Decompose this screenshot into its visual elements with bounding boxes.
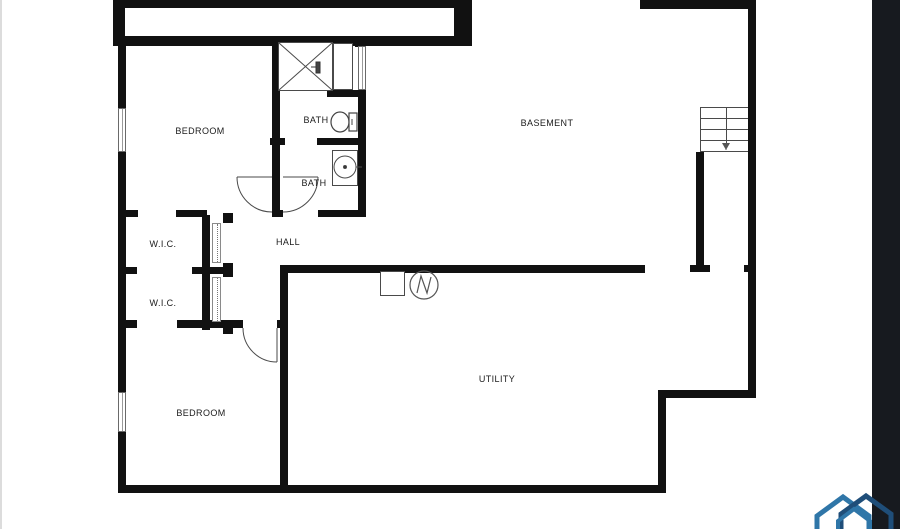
room-label-bedroom-upper: BEDROOM <box>175 126 224 136</box>
water-heater-icon <box>410 271 438 299</box>
room-label-basement: BASEMENT <box>521 118 574 128</box>
room-label-bedroom-lower: BEDROOM <box>176 408 225 418</box>
sink-icon <box>334 156 362 178</box>
door-swing-bedroom-lower <box>243 328 277 362</box>
toilet-icon <box>331 112 357 132</box>
brand-logo <box>817 496 891 529</box>
shower-head-icon <box>311 62 320 73</box>
room-label-wic-lower: W.I.C. <box>150 298 177 308</box>
door-swing-bedroom-upper <box>237 177 272 212</box>
room-label-hall: HALL <box>276 237 300 247</box>
room-label-wic-upper: W.I.C. <box>150 239 177 249</box>
room-label-utility: UTILITY <box>479 374 515 384</box>
room-label-bath-lower: BATH <box>302 178 327 188</box>
floor-plan: BEDROOM BATH BATH BASEMENT HALL W.I.C. W… <box>0 0 900 529</box>
room-label-bath-upper: BATH <box>304 115 329 125</box>
plan-overlay <box>0 0 900 529</box>
